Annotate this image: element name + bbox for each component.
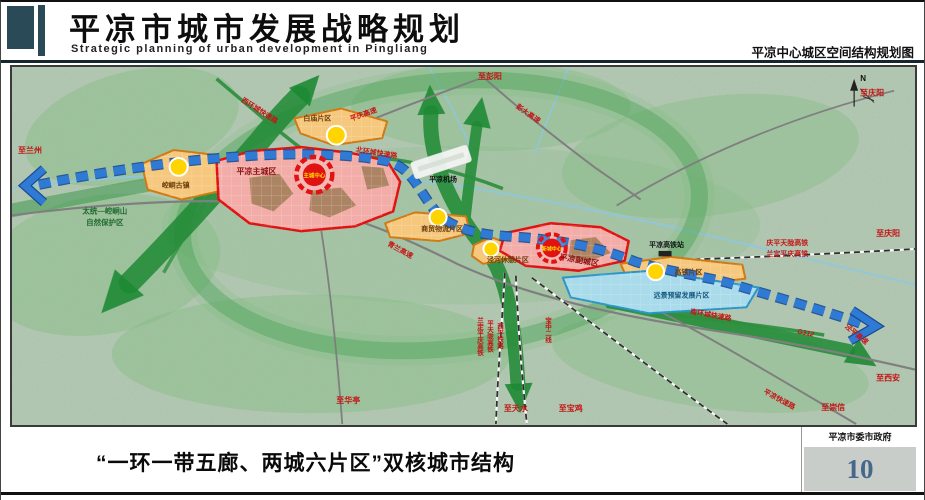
- label-baozhong-vertical: 宝中二线: [543, 317, 550, 343]
- page-subtitle: Strategic planning of urban development …: [71, 43, 428, 55]
- plan-sheet: 平凉市城市发展战略规划 Strategic planning of urban …: [0, 0, 925, 500]
- label-to-chongxin: 至崇信: [821, 402, 845, 412]
- label-nature-reserve-2: 自然保护区: [86, 217, 124, 227]
- label-to-baoji: 至宝鸡: [559, 403, 583, 413]
- label-kongtong: 崆峒古镇: [162, 181, 190, 190]
- compass-n-label: N: [860, 74, 866, 83]
- logo-bar: [38, 5, 45, 56]
- header: 平凉市城市发展战略规划 Strategic planning of urban …: [1, 2, 925, 60]
- label-reserve: 远景预留发展片区: [654, 290, 710, 299]
- hsr-station-icon: [659, 251, 672, 256]
- authority-label: 平凉市委市政府: [803, 430, 917, 443]
- label-to-qingyang-east: 至庆阳: [876, 228, 900, 238]
- label-to-pengyang: 至彭阳: [478, 71, 502, 81]
- label-airport: 平凉机场: [429, 175, 457, 184]
- label-hsr-station: 平凉高铁站: [649, 240, 684, 249]
- label-to-lanzhou: 至兰州: [18, 145, 42, 155]
- footer: “一环一带五廊、两城六片区”双核城市结构 平凉市委市政府 10: [1, 427, 925, 493]
- label-logistics: 商贸物流片区: [421, 224, 463, 233]
- label-baimiao: 白庙片区: [303, 113, 331, 122]
- label-to-huating: 至华亭: [336, 395, 360, 405]
- logo-square: [7, 6, 34, 49]
- map-frame: 主城中心 新城中心 N 平凉主城区 平凉: [10, 65, 917, 427]
- bottom-rule: [1, 492, 925, 495]
- footer-divider: [801, 427, 802, 493]
- label-ldpq-hsr: 兰定平庆高铁: [766, 249, 808, 258]
- planning-map: 主城中心 新城中心 N 平凉主城区 平凉: [12, 67, 915, 425]
- label-qptl-hsr: 庆平天陇高铁: [765, 238, 808, 247]
- label-to-tianshui: 至天水: [504, 403, 529, 413]
- label-leisure: 泾河休憩片区: [487, 255, 529, 264]
- sheet-caption: 平凉中心城区空间结构规划图: [751, 42, 914, 61]
- label-nature-reserve-1: 太统—崆峒山: [82, 205, 127, 215]
- label-ldpq-vertical: 兰定平庆高铁: [475, 317, 482, 356]
- label-main-city: 平凉主城区: [237, 166, 277, 176]
- label-ptl-vertical: 平天陇高铁: [485, 320, 492, 353]
- page-number: 10: [847, 454, 874, 485]
- structure-slogan: “一环一带五廊、两城六片区”双核城市结构: [96, 447, 515, 477]
- main-city-core: 主城中心: [296, 157, 332, 193]
- eco-patches: [12, 67, 875, 425]
- label-to-xian: 至西安: [876, 373, 900, 383]
- label-xiping-vertical: 西平铁路: [495, 323, 502, 349]
- new-core-label: 新城中心: [542, 245, 562, 252]
- label-to-qingyang-top: 至庆阳: [860, 88, 884, 98]
- header-rule: [1, 60, 925, 63]
- page-number-box: 10: [804, 447, 916, 491]
- main-core-label: 主城中心: [303, 171, 325, 179]
- label-hsr-district: 高铁片区: [675, 268, 703, 277]
